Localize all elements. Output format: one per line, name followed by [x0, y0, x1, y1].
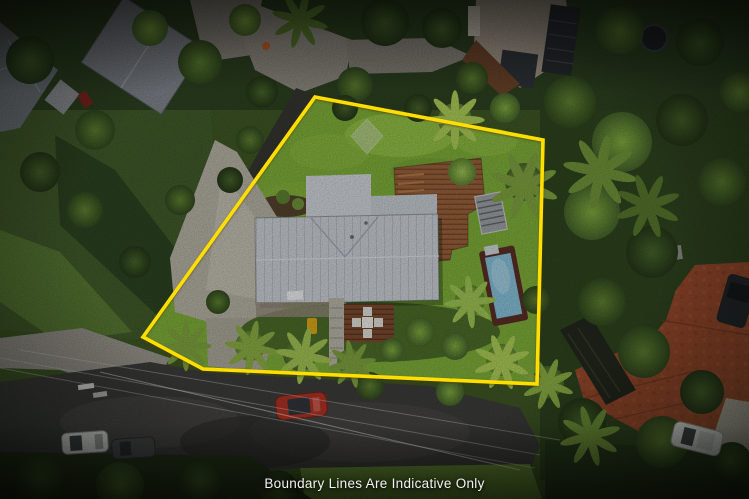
- aerial-photo: Boundary Lines Are Indicative Only: [0, 0, 749, 499]
- boundary-disclaimer-caption: Boundary Lines Are Indicative Only: [264, 476, 484, 491]
- aerial-photo-canvas: [0, 0, 749, 499]
- top-shade: [0, 0, 749, 92]
